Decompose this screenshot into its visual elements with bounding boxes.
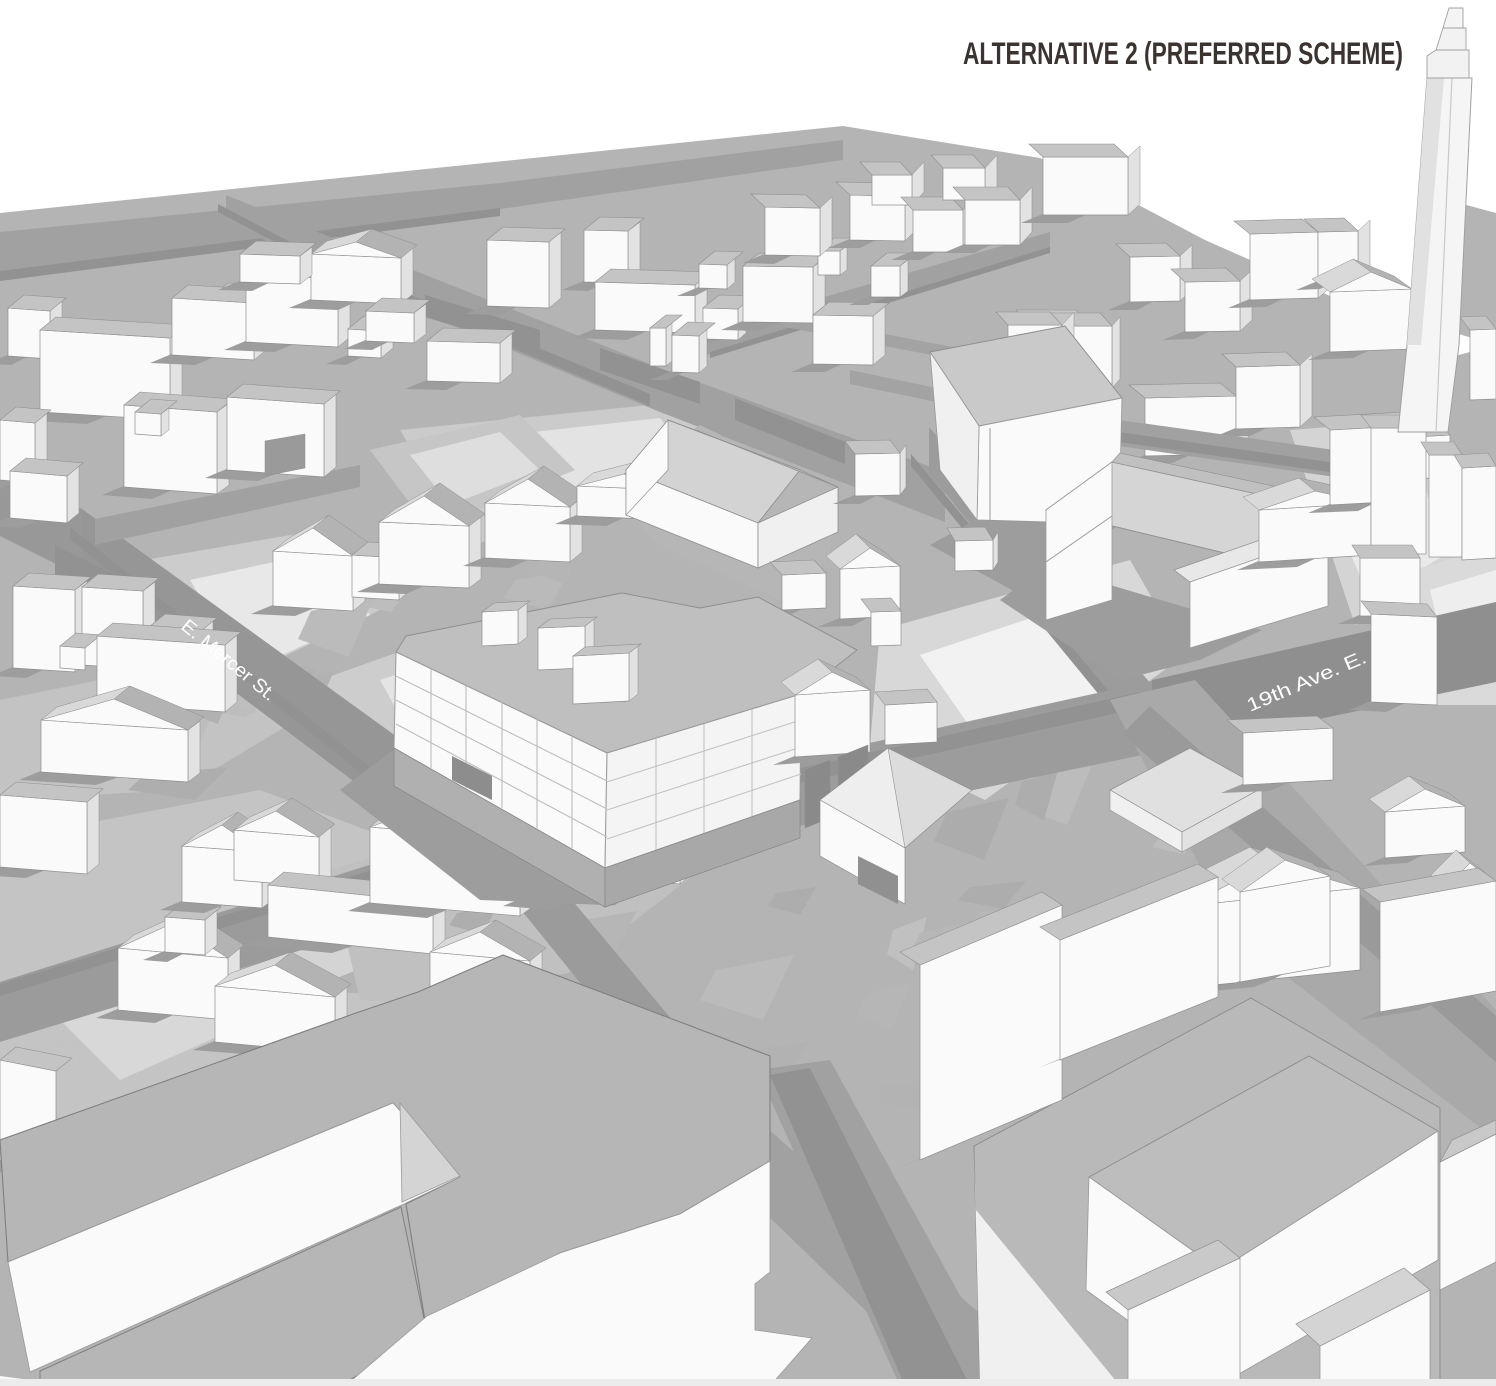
svg-text:ALTERNATIVE 2 (PREFERRED SCHEM: ALTERNATIVE 2 (PREFERRED SCHEME) [963,35,1403,71]
